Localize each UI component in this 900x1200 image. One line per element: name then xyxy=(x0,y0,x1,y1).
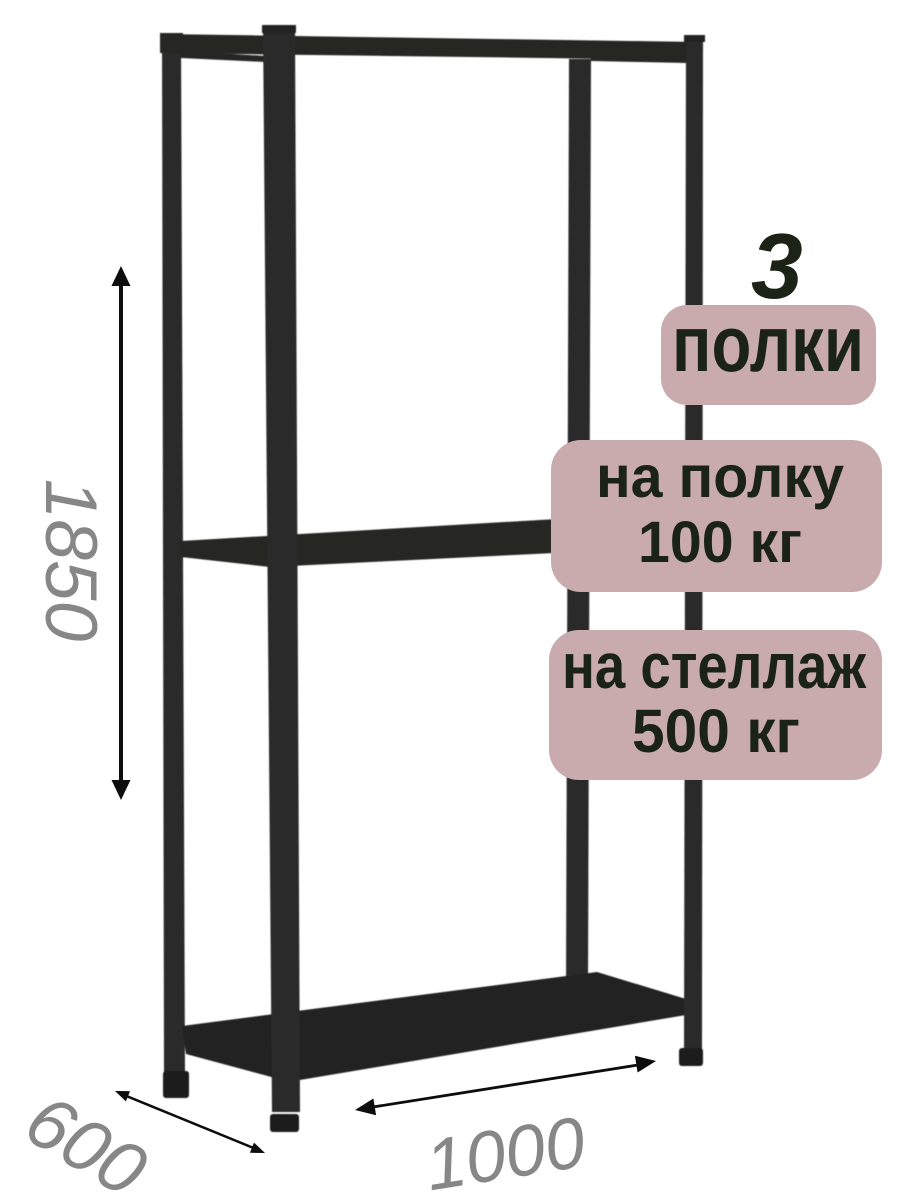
svg-text:на полку: на полку xyxy=(596,444,844,510)
svg-text:1850: 1850 xyxy=(30,479,111,641)
svg-text:500 кг: 500 кг xyxy=(632,697,800,765)
svg-text:на стеллаж: на стеллаж xyxy=(562,630,867,702)
svg-text:100 кг: 100 кг xyxy=(638,510,802,575)
svg-text:полки: полки xyxy=(672,299,864,388)
